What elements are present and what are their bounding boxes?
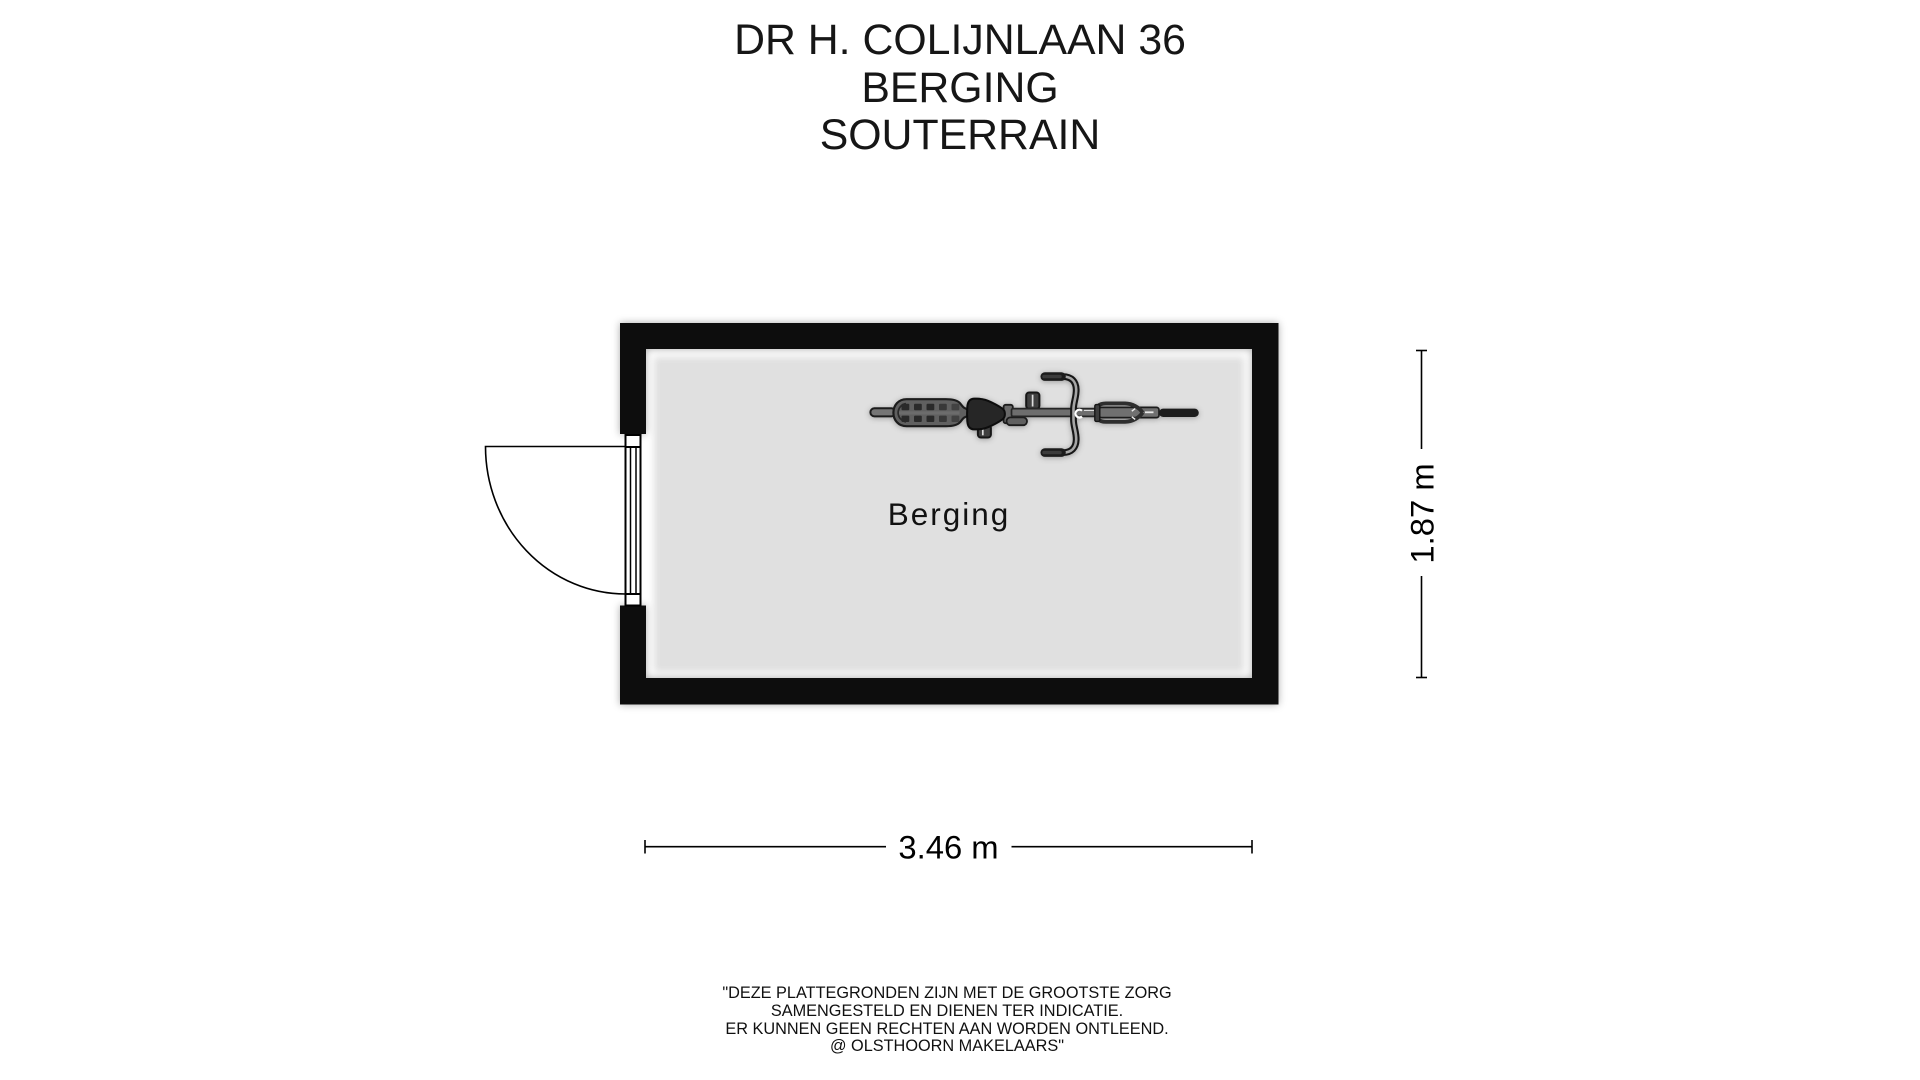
svg-text:3.46 m: 3.46 m	[898, 829, 998, 866]
svg-text:Berging: Berging	[888, 496, 1011, 532]
svg-text:1.87 m: 1.87 m	[1404, 463, 1441, 563]
